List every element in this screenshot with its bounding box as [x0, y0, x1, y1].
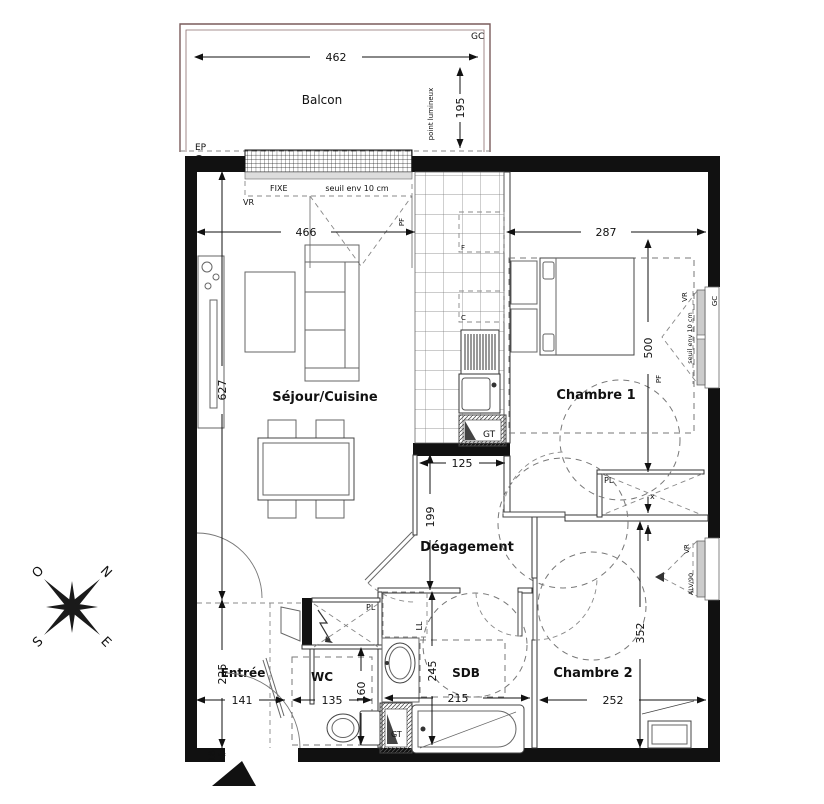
window-swing-arrow-icon [655, 572, 664, 582]
hallway: Dégagement 125 199 [365, 455, 628, 602]
bedroom1: Chambre 1 PL x GC VR seuil env 10 cm PF [503, 258, 719, 541]
entrance-arrow-icon [212, 761, 256, 786]
nightstand-icon [511, 309, 537, 352]
kitchen-area: F C GT [415, 172, 506, 446]
ll-label: LL [415, 621, 424, 630]
bed-icon [540, 258, 634, 355]
floor-plan-drawing: GC Balcon EP point lumineux 462 195 [0, 0, 824, 800]
cooktop-icon [461, 330, 499, 374]
dim-sejour-width: 466 [197, 226, 415, 239]
window-bedroom1: GC VR seuil env 10 cm PF [655, 287, 719, 388]
svg-text:252: 252 [603, 694, 624, 707]
dining-table-icon [258, 420, 354, 518]
vr-label-bedroom1: VR [681, 292, 689, 302]
pf-label-top: PF [398, 218, 406, 226]
svg-text:462: 462 [326, 51, 347, 64]
toilet-icon [327, 711, 380, 745]
point-lumineux-label: point lumineux [427, 88, 435, 141]
room-label-degagement: Dégagement [420, 540, 514, 555]
room-label-balcon: Balcon [302, 93, 342, 107]
svg-text:466: 466 [296, 226, 317, 239]
compass-north-label: N [97, 564, 114, 581]
ep-label: EP [195, 143, 207, 153]
svg-text:245: 245 [426, 661, 439, 682]
duct-gt-kitchen: GT [459, 415, 506, 446]
door-swing-dashed [310, 196, 412, 266]
window-bedroom2: VR ALV/90 [655, 538, 719, 600]
balcony-window: FIXE seuil env 10 cm VR PF [243, 150, 412, 268]
door-arc-sejour [197, 533, 262, 598]
closet-entry: PL [314, 603, 378, 647]
dim-balcony-width: 462 [195, 51, 478, 64]
svg-text:160: 160 [355, 682, 368, 703]
washbasin-icon [382, 638, 419, 702]
floor-plan-page: GC Balcon EP point lumineux 462 195 [0, 0, 824, 800]
svg-text:215: 215 [448, 692, 469, 705]
svg-text:352: 352 [634, 623, 647, 644]
radiator-bedroom2-icon [642, 701, 694, 748]
alv-label: ALV/90 [687, 573, 695, 595]
svg-text:287: 287 [596, 226, 617, 239]
sofa-icon [305, 245, 359, 381]
entrance-door-arc [225, 673, 300, 748]
svg-text:627: 627 [216, 380, 229, 401]
kitchen-sink-icon [459, 374, 500, 413]
dim-entree-height: 225 [216, 600, 229, 748]
bathtub-icon [412, 705, 524, 753]
pl-label-entry: PL [366, 603, 376, 612]
room-label-sdb: SDB [452, 666, 480, 680]
gc-label-balcony: GC [471, 32, 484, 42]
dim-hallway-width: 125 [420, 457, 505, 470]
svg-text:141: 141 [232, 694, 253, 707]
room-label-wc: WC [311, 670, 333, 684]
dim-chambre2-width: 252 [540, 694, 706, 707]
bathroom: LL SDB GT [380, 592, 527, 753]
fridge-label: F [461, 244, 465, 252]
low-table-icon [245, 272, 295, 352]
compass-south-label: S [30, 634, 46, 650]
svg-text:225: 225 [216, 664, 229, 685]
room-label-sejour: Séjour/Cuisine [272, 390, 378, 405]
door-bedroom2 [533, 578, 597, 640]
fixe-label: FIXE [270, 184, 288, 193]
duct-gt-bathroom: GT [380, 703, 412, 753]
pf-label-bedroom1: PF [655, 375, 663, 383]
room-label-chambre1: Chambre 1 [556, 388, 635, 403]
dim-chambre2-height: 352 [634, 522, 647, 748]
bedroom2: Chambre 2 VR ALV/90 [533, 538, 719, 748]
gt-label-kitchen: GT [483, 430, 496, 440]
nightstand-icon [511, 261, 537, 304]
gc-label-right: GC [711, 296, 719, 306]
turning-circle-bedroom2 [538, 552, 646, 660]
svg-text:125: 125 [452, 457, 473, 470]
svg-text:500: 500 [642, 338, 655, 359]
compass-west-label: O [29, 563, 47, 581]
door-bedroom1 [503, 452, 565, 517]
room-label-chambre2: Chambre 2 [553, 666, 632, 681]
svg-text:18: 18 [208, 750, 218, 762]
dim-balcony-depth: 195 [454, 68, 467, 148]
closet-bedroom1: PL x [602, 474, 702, 541]
dim-entree-width: 141 [197, 694, 285, 707]
dim-hallway-height: 199 [424, 455, 437, 590]
radiator-icon [198, 256, 224, 428]
svg-text:135: 135 [322, 694, 343, 707]
cooktop-label: C [461, 314, 466, 322]
gt-label-bathroom: GT [391, 730, 402, 739]
balcony: GC Balcon EP point lumineux 462 195 [180, 24, 490, 165]
dim-chambre1-width: 287 [507, 226, 706, 239]
dim-chambre1-height: 500 [642, 240, 655, 472]
coat-rack-icon [281, 607, 300, 641]
seuil-label-bedroom1: seuil env 10 cm [686, 312, 694, 363]
compass-east-label: E [97, 634, 113, 650]
svg-text:195: 195 [454, 98, 467, 119]
compass-rose-icon: O N S E [29, 563, 114, 650]
svg-text:199: 199 [424, 507, 437, 528]
seuil-label-top: seuil env 10 cm [325, 184, 389, 193]
x-mark: x [650, 492, 655, 501]
vr-label-top: VR [243, 198, 254, 207]
interior-walls [302, 172, 708, 748]
vr-label-bedroom2: VR [683, 544, 691, 554]
